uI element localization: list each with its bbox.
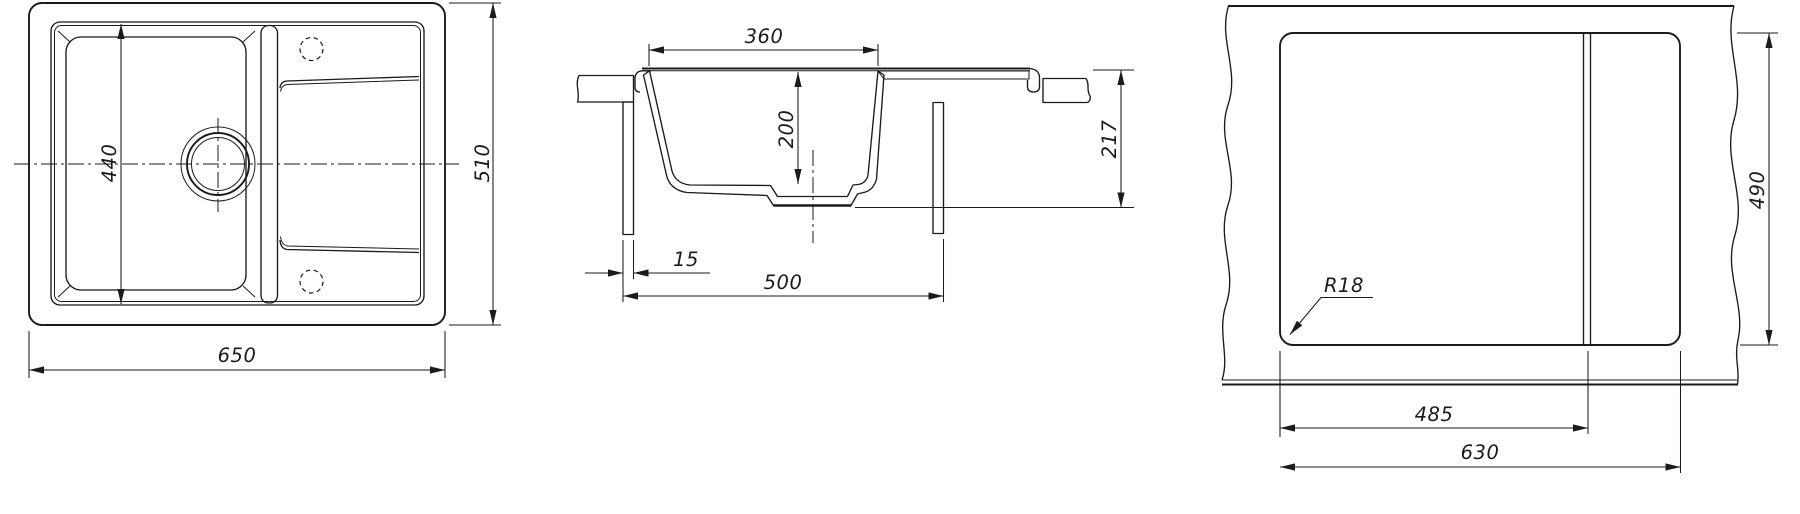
dim-label-r18: R18 (1324, 274, 1364, 297)
faucet-hole-top (300, 38, 323, 61)
dim-label-485: 485 (1415, 403, 1454, 426)
section-view: 360 200 217 15 500 (577, 25, 1134, 302)
radius-callout-r18: R18 (1290, 274, 1373, 335)
rim-left-lip (635, 71, 651, 92)
cabinet-panel-right (933, 103, 944, 234)
countertop-right-section (1043, 79, 1090, 103)
dim-label-200: 200 (775, 110, 798, 149)
dim-label-490: 490 (1746, 171, 1769, 210)
sink-cutout-outline (1280, 33, 1680, 345)
dim-label-500: 500 (764, 271, 803, 294)
dim-cutout-depth-490: 490 (1737, 33, 1778, 345)
drainboard-flange-section (878, 71, 1029, 79)
cutout-view: R18 490 485 630 (1222, 6, 1778, 473)
dim-label-440: 440 (98, 144, 121, 183)
break-line-right (1731, 6, 1740, 384)
dim-label-510: 510 (471, 144, 494, 183)
technical-drawing: 440 650 510 (0, 0, 1800, 514)
cabinet-panel-left (623, 102, 634, 235)
dim-label-650: 650 (218, 344, 257, 367)
bowl-section-walls (644, 71, 885, 206)
break-line-left (1222, 6, 1232, 380)
dim-bowl-length-440: 440 (98, 24, 121, 304)
dim-bowl-depth-200: 200 (775, 72, 798, 184)
dim-cabinet-width-500: 500 (623, 239, 944, 302)
dim-label-630: 630 (1461, 441, 1500, 464)
dim-label-217: 217 (1098, 120, 1121, 159)
dim-cutout-width-630: 630 (1280, 351, 1681, 473)
faucet-hole-bottom (300, 270, 323, 293)
dim-label-360: 360 (745, 25, 784, 48)
dim-bowl-top-width-360: 360 (649, 25, 878, 66)
dim-panel-offset-15: 15 (585, 240, 710, 302)
dim-overall-width-650: 650 (29, 331, 445, 378)
top-view: 440 650 510 (14, 3, 501, 378)
countertop-left-section (577, 76, 633, 103)
dim-overall-height-217: 217 (855, 70, 1134, 208)
dim-label-15: 15 (673, 248, 699, 271)
dim-bowl-cutout-485: 485 (1280, 351, 1588, 437)
